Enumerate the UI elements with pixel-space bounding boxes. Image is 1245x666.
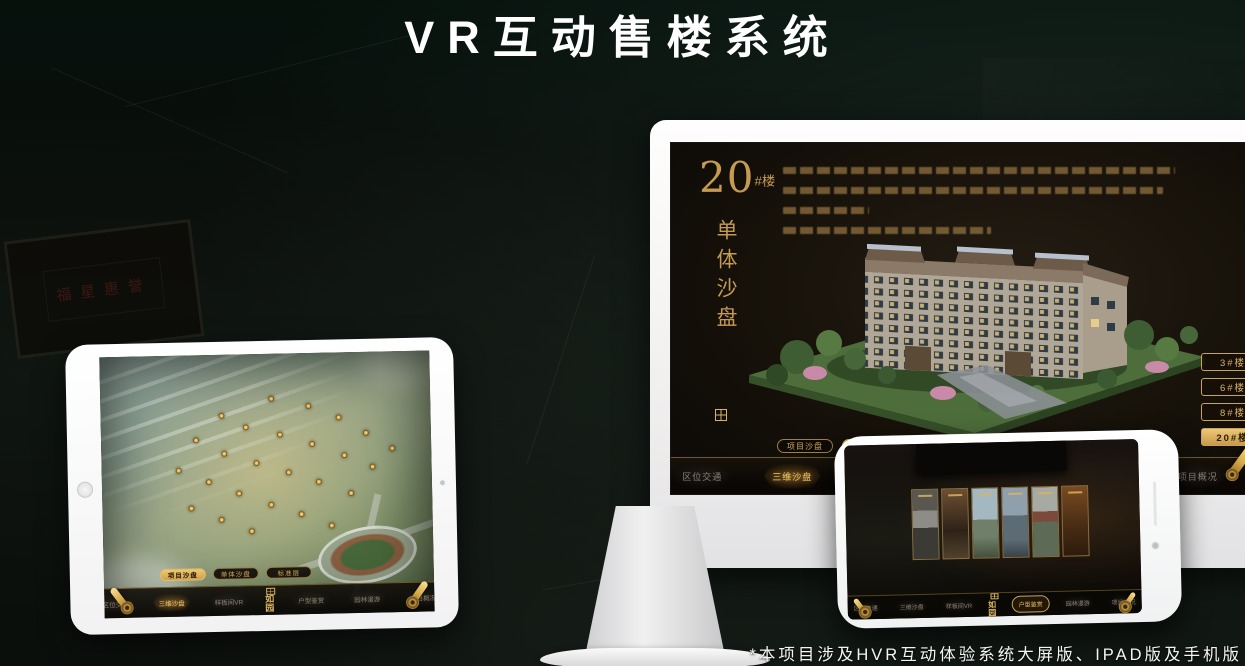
- brand-logo-text: 如园: [988, 600, 1002, 616]
- page-title: VR互动售楼系统: [0, 1, 1245, 66]
- nav-item-3d-sandbox[interactable]: 三维沙盘: [894, 599, 930, 615]
- brand-logo[interactable]: 如园: [265, 587, 277, 613]
- speaker-icon: [1153, 482, 1157, 526]
- subtab-single-sandbox[interactable]: 单体沙盘: [213, 567, 259, 580]
- phone-device: 区位交通 三维沙盘 样板间VR 如园 户型鉴赏 园林漫游 项目概况: [834, 429, 1182, 629]
- nav-item-3d-sandbox-active[interactable]: 三维沙盘: [150, 593, 192, 612]
- tablet-device: 项目沙盘 单体沙盘 标准层 区位交通 三维沙盘 样板间VR 如园 户型鉴赏 园林…: [65, 337, 459, 635]
- subtab-standard-floor[interactable]: 标准层: [266, 566, 312, 579]
- tablet-screen: 项目沙盘 单体沙盘 标准层 区位交通 三维沙盘 样板间VR 如园 户型鉴赏 园林…: [99, 350, 434, 618]
- subtab-project-sandbox[interactable]: 项目沙盘: [777, 439, 833, 453]
- nav-item-3d-sandbox-active[interactable]: 三维沙盘: [760, 464, 824, 489]
- scene-panel-garden[interactable]: [1031, 486, 1060, 558]
- camera-icon: [440, 480, 445, 485]
- scene-panel-interior-2[interactable]: [941, 488, 970, 560]
- floor-button-6[interactable]: 6#楼: [1201, 378, 1245, 396]
- plaque-frame: 福星惠誉: [42, 256, 165, 321]
- building-number: 20: [699, 153, 754, 202]
- footnote-text: *本项目涉及HVR互动体验系统大屏版、IPAD版及手机版: [749, 641, 1242, 665]
- main-nav: 区位交通 三维沙盘 样板间VR 如园 户型鉴赏 园林漫游 项目概况: [104, 581, 435, 618]
- scene-panel-row: [911, 485, 1090, 560]
- background-plaque: 福星惠誉: [4, 219, 205, 359]
- scene-panel-building[interactable]: [1001, 487, 1030, 559]
- gate-lintel-render: [916, 441, 1067, 474]
- nav-item-unit-appreciation[interactable]: 户型鉴赏: [290, 590, 332, 609]
- seal-icon: [715, 409, 727, 421]
- text-line: [783, 187, 1163, 194]
- plaque-text: 福星惠誉: [55, 275, 152, 305]
- floor-button-group: 3#楼 6#楼 8#楼 20#楼: [1201, 353, 1245, 446]
- nav-item-garden-roam[interactable]: 园林漫游: [346, 589, 388, 608]
- building-heading: 20#楼: [699, 157, 775, 199]
- floor-button-20-active[interactable]: 20#楼: [1201, 428, 1245, 446]
- nav-item-garden-roam[interactable]: 园林漫游: [1059, 595, 1095, 611]
- floor-button-3[interactable]: 3#楼: [1201, 353, 1245, 371]
- subtab-project-sandbox-active[interactable]: 项目沙盘: [160, 568, 206, 581]
- brand-logo[interactable]: 如园: [988, 593, 1002, 616]
- building-3d-render[interactable]: [737, 207, 1217, 457]
- phone-screen: 区位交通 三维沙盘 样板间VR 如园 户型鉴赏 园林漫游 项目概况: [844, 439, 1142, 620]
- scene-panel-exterior-1[interactable]: [971, 487, 1000, 559]
- nav-item-unit-appreciation-active[interactable]: 户型鉴赏: [1011, 595, 1049, 613]
- nav-item-showroom-vr[interactable]: 样板间VR: [206, 592, 251, 611]
- scene-panel-interior-1[interactable]: [911, 489, 940, 561]
- home-button[interactable]: [77, 482, 93, 498]
- building-number-suffix: #楼: [754, 174, 775, 189]
- seal-icon: [266, 587, 275, 594]
- nav-item-showroom-vr[interactable]: 样板间VR: [940, 598, 979, 614]
- nav-item-location[interactable]: 区位交通: [670, 464, 734, 489]
- scene-panel-interior-3[interactable]: [1061, 485, 1090, 557]
- camera-icon: [1151, 542, 1159, 550]
- text-line: [783, 167, 1175, 174]
- floor-button-8[interactable]: 8#楼: [1201, 403, 1245, 421]
- page: 福星惠誉 VR互动售楼系统 20#楼 单体沙盘: [0, 0, 1245, 666]
- monitor-stand-base: [540, 648, 770, 666]
- brand-logo-text: 如园: [265, 595, 276, 613]
